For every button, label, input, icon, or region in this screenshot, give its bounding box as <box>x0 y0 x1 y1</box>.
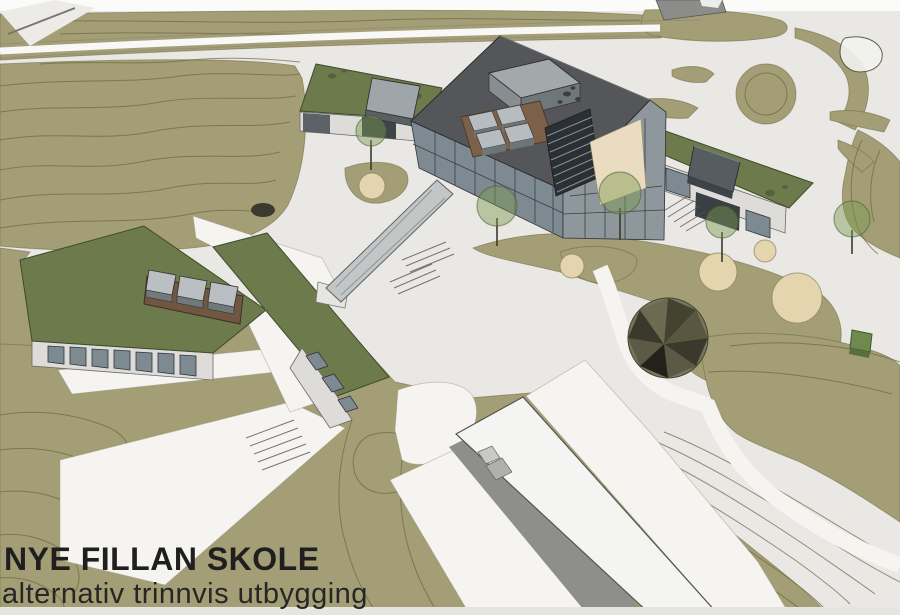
project-title: NYE FILLAN SKOLE alternativ trinnvis utb… <box>2 541 368 610</box>
title-line2: alternativ trinnvis utbygging <box>2 578 368 610</box>
architectural-rendering: NYE FILLAN SKOLE alternativ trinnvis utb… <box>0 0 900 615</box>
tree <box>477 186 517 226</box>
tree <box>599 172 641 214</box>
tree <box>356 116 386 146</box>
bush <box>251 203 275 217</box>
top-margin <box>0 0 900 11</box>
tree <box>706 206 738 238</box>
site-plan-3d-view: NYE FILLAN SKOLE alternativ trinnvis utb… <box>0 0 900 615</box>
tree <box>834 201 870 237</box>
crater-mound <box>628 298 708 378</box>
title-line1: NYE FILLAN SKOLE <box>4 541 320 577</box>
